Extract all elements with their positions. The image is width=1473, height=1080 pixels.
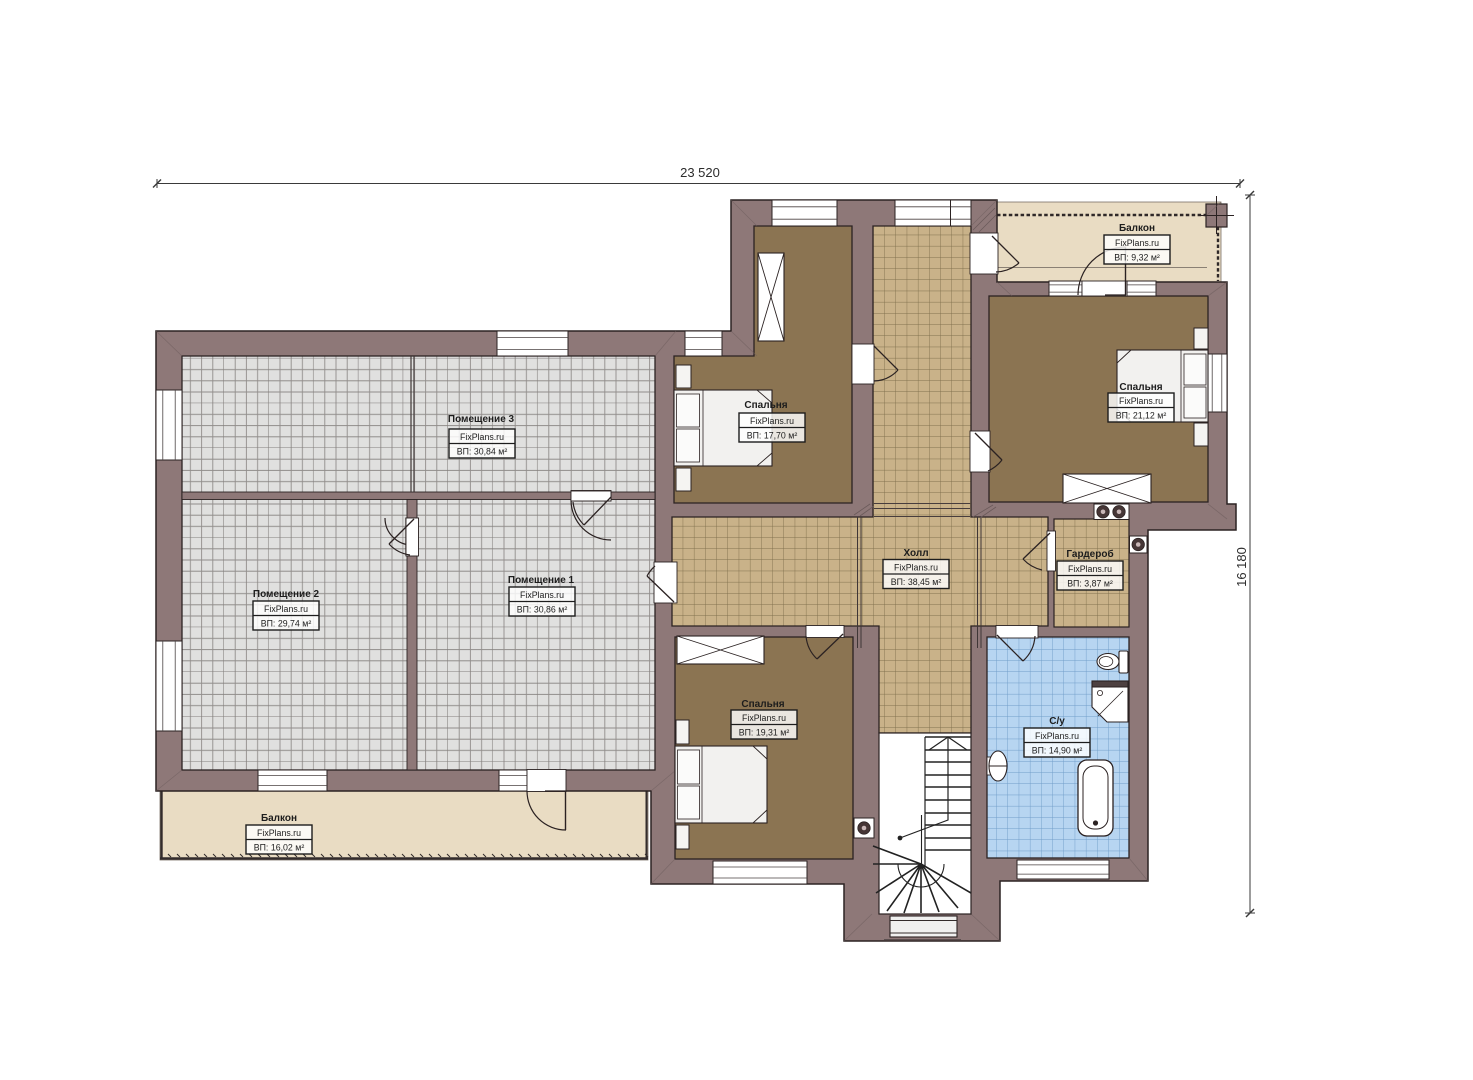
svg-text:Помещение 1: Помещение 1 — [508, 575, 575, 586]
svg-text:ВП: 14,90 м²: ВП: 14,90 м² — [1032, 746, 1083, 756]
svg-text:Спальня: Спальня — [1119, 382, 1162, 393]
svg-text:FixPlans.ru: FixPlans.ru — [1115, 238, 1159, 248]
svg-text:ВП: 38,45 м²: ВП: 38,45 м² — [891, 577, 942, 587]
svg-text:С/у: С/у — [1049, 716, 1065, 727]
svg-text:FixPlans.ru: FixPlans.ru — [894, 563, 938, 573]
svg-text:ВП: 3,87 м²: ВП: 3,87 м² — [1067, 579, 1113, 589]
svg-text:ВП: 16,02 м²: ВП: 16,02 м² — [254, 843, 305, 853]
svg-text:FixPlans.ru: FixPlans.ru — [460, 432, 504, 442]
svg-text:FixPlans.ru: FixPlans.ru — [750, 416, 794, 426]
svg-text:ВП: 30,84 м²: ВП: 30,84 м² — [457, 447, 508, 457]
svg-text:FixPlans.ru: FixPlans.ru — [520, 590, 564, 600]
svg-text:FixPlans.ru: FixPlans.ru — [1035, 731, 1079, 741]
svg-text:FixPlans.ru: FixPlans.ru — [742, 713, 786, 723]
svg-text:Балкон: Балкон — [1119, 223, 1155, 234]
svg-text:FixPlans.ru: FixPlans.ru — [1068, 564, 1112, 574]
svg-text:Помещение 2: Помещение 2 — [253, 589, 320, 600]
svg-text:ВП: 29,74 м²: ВП: 29,74 м² — [261, 619, 312, 629]
svg-text:Холл: Холл — [903, 548, 928, 559]
svg-text:ВП: 21,12 м²: ВП: 21,12 м² — [1116, 411, 1167, 421]
svg-text:Спальня: Спальня — [744, 400, 787, 411]
svg-text:Спальня: Спальня — [741, 699, 784, 710]
svg-text:Балкон: Балкон — [261, 813, 297, 824]
svg-text:Гардероб: Гардероб — [1066, 548, 1113, 560]
svg-text:Помещение 3: Помещение 3 — [448, 414, 515, 425]
svg-text:23 520: 23 520 — [680, 165, 720, 180]
svg-text:ВП: 19,31 м²: ВП: 19,31 м² — [739, 728, 790, 738]
svg-text:ВП: 30,86 м²: ВП: 30,86 м² — [517, 605, 568, 615]
svg-text:FixPlans.ru: FixPlans.ru — [257, 828, 301, 838]
svg-text:16 180: 16 180 — [1234, 547, 1249, 587]
svg-text:ВП: 17,70 м²: ВП: 17,70 м² — [747, 431, 798, 441]
svg-text:ВП: 9,32 м²: ВП: 9,32 м² — [1114, 253, 1160, 263]
svg-text:FixPlans.ru: FixPlans.ru — [1119, 396, 1163, 406]
svg-text:FixPlans.ru: FixPlans.ru — [264, 604, 308, 614]
